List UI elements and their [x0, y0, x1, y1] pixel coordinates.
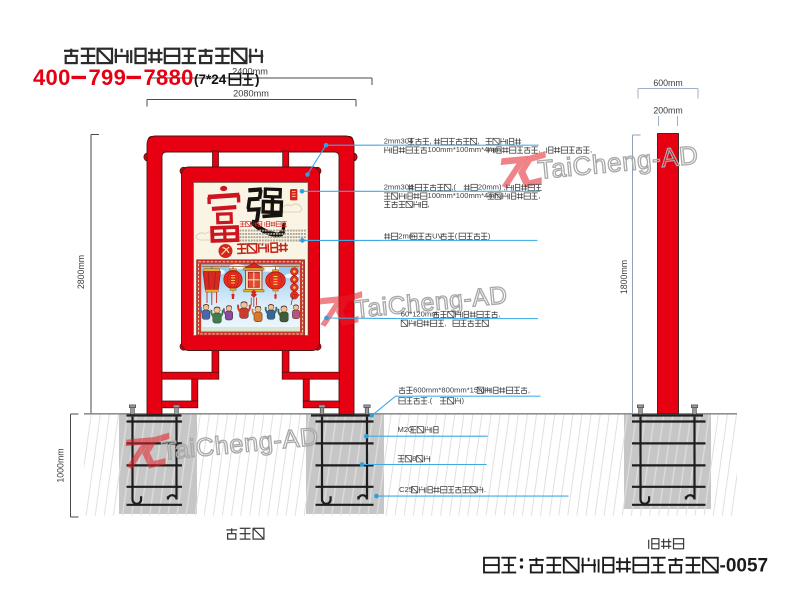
svg-text:2400mm: 2400mm — [232, 67, 268, 77]
svg-text:,: , — [538, 191, 540, 200]
svg-text:,: , — [498, 310, 500, 319]
svg-text:,: , — [590, 145, 592, 154]
svg-text:,: , — [528, 385, 530, 394]
svg-text:C25: C25 — [399, 485, 413, 494]
svg-text:(7*24: (7*24 — [194, 72, 227, 87]
svg-text:-0057: -0057 — [720, 556, 769, 577]
svg-text:2080mm: 2080mm — [233, 89, 269, 99]
svg-text:60*120mm: 60*120mm — [401, 310, 438, 319]
svg-text:,: , — [538, 145, 540, 154]
svg-text:): ) — [255, 72, 260, 87]
svg-text:8: 8 — [412, 454, 416, 463]
svg-text:,: , — [445, 318, 447, 327]
svg-text:,: , — [428, 200, 430, 209]
svg-text:2800mm: 2800mm — [76, 255, 86, 289]
svg-text:.: . — [484, 485, 486, 494]
svg-text:.(: .( — [428, 396, 433, 405]
svg-text:1800mm: 1800mm — [619, 260, 629, 294]
svg-text:2mm304: 2mm304 — [384, 183, 414, 192]
svg-text:100mm*100mm*4mm: 100mm*100mm*4mm — [428, 145, 501, 154]
svg-text:200mm: 200mm — [653, 106, 682, 116]
svg-text:1000mm: 1000mm — [56, 448, 66, 482]
svg-text:799: 799 — [89, 65, 127, 90]
svg-text:400: 400 — [33, 65, 71, 90]
svg-text:7880: 7880 — [144, 65, 194, 90]
svg-text:600mm: 600mm — [653, 78, 682, 88]
